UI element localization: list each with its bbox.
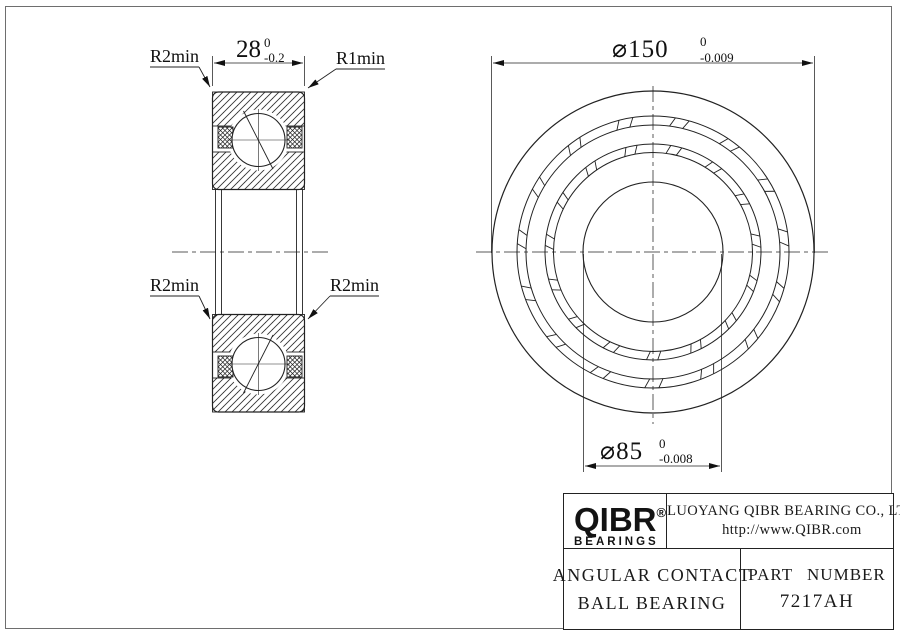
title-block: QIBR® BEARINGS LUOYANG QIBR BEARING CO.,…: [563, 493, 894, 630]
r2min-label-top-left: R2min: [150, 46, 199, 66]
part-number-value: 7217AH: [780, 591, 854, 613]
width-dimension-tol-lower: -0.2: [264, 50, 285, 65]
r2min-label-mid-right: R2min: [330, 275, 379, 295]
front-view: ⌀150 0 -0.009 ⌀85 0 -0.008: [476, 34, 830, 472]
width-dimension-tol-upper: 0: [264, 35, 271, 50]
cage-section-left: [218, 356, 233, 377]
company-cell: LUOYANG QIBR BEARING CO., LTD http://www…: [667, 494, 900, 548]
company-website: http://www.QIBR.com: [722, 522, 862, 539]
top-half-section: [213, 92, 305, 190]
logo-cell: QIBR® BEARINGS: [564, 494, 667, 548]
part-number-cell: PART NUMBER 7217AH: [741, 549, 893, 629]
qibr-logo: QIBR®: [574, 498, 666, 535]
cage-section-right: [287, 356, 302, 377]
bottom-half-section: [213, 315, 305, 413]
title-block-header-row: QIBR® BEARINGS LUOYANG QIBR BEARING CO.,…: [564, 494, 893, 549]
left-section-view: 28 0 -0.2 R2min R1min R2min R2min: [150, 35, 385, 412]
bore-dimension-tol-lower: -0.008: [659, 451, 693, 466]
logo-text: QIBR: [574, 501, 657, 538]
leader-line: [308, 69, 336, 88]
leader-line: [308, 296, 330, 319]
cage-section-right: [287, 127, 302, 148]
od-dimension-tol-upper: 0: [700, 34, 707, 49]
product-name-line1: ANGULAR CONTACT: [553, 565, 752, 586]
drawing-sheet: 28 0 -0.2 R2min R1min R2min R2min: [0, 0, 900, 636]
product-name-line2: BALL BEARING: [578, 593, 727, 614]
bore-dimension-value: ⌀85: [600, 438, 643, 465]
company-name: LUOYANG QIBR BEARING CO., LTD: [667, 503, 900, 520]
r2min-label-mid-left: R2min: [150, 275, 199, 295]
product-cell: ANGULAR CONTACT BALL BEARING: [564, 549, 741, 629]
od-dimension-tol-lower: -0.009: [700, 50, 734, 65]
leader-line: [199, 67, 210, 87]
logo-subtext: BEARINGS: [574, 536, 666, 548]
leader-line: [199, 296, 210, 319]
part-number-label: PART NUMBER: [748, 565, 886, 585]
r1min-label-top-right: R1min: [336, 48, 385, 68]
title-block-detail-row: ANGULAR CONTACT BALL BEARING PART NUMBER…: [564, 549, 893, 629]
cage-section-left: [218, 127, 233, 148]
od-dimension-value: ⌀150: [612, 36, 669, 63]
registered-mark: ®: [657, 505, 667, 520]
bore-dimension-tol-upper: 0: [659, 436, 666, 451]
width-dimension-value: 28: [236, 36, 261, 63]
